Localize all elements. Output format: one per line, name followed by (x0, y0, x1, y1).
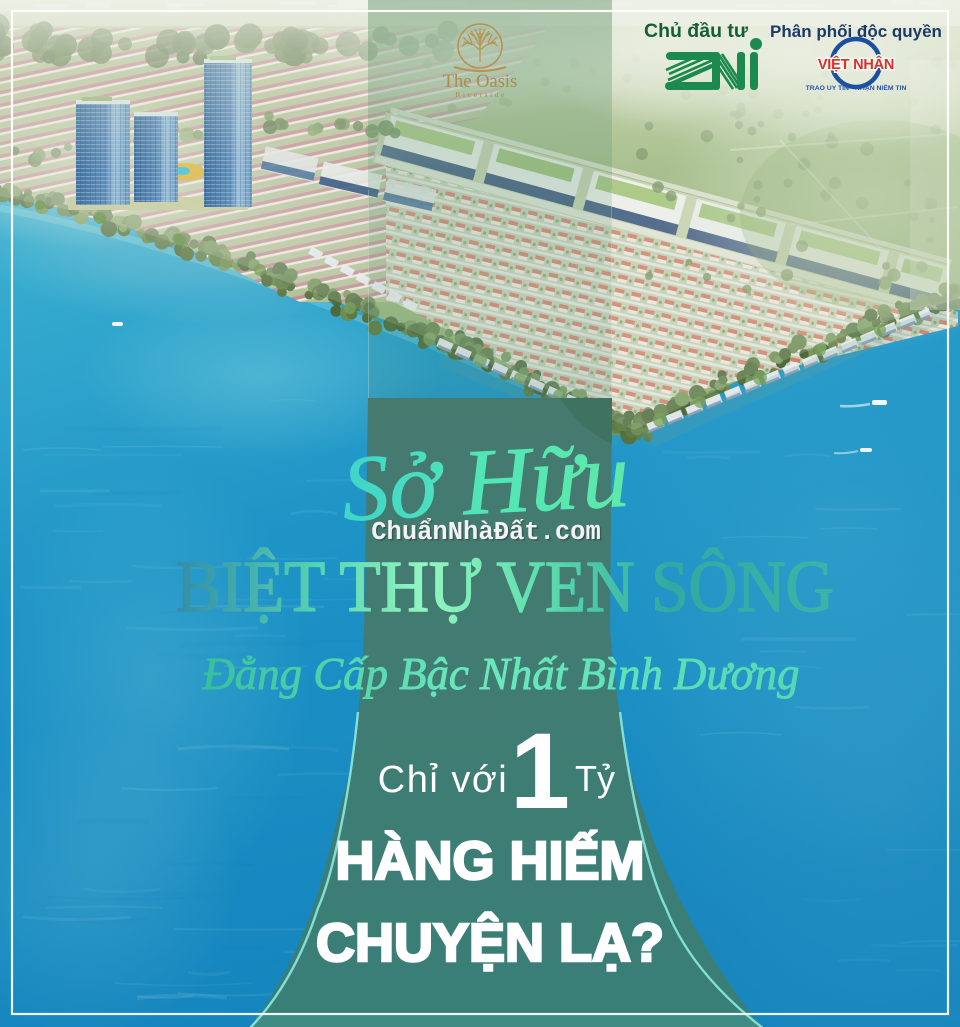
svg-text:Riverside: Riverside (455, 90, 506, 99)
svg-text:HÀNG HIẾM: HÀNG HIẾM (336, 831, 645, 891)
svg-text:ChuẩnNhàĐất.com: ChuẩnNhàĐất.com (371, 518, 601, 547)
svg-text:Tỷ: Tỷ (575, 758, 615, 799)
svg-text:Chỉ với: Chỉ với (378, 759, 508, 801)
svg-text:BIỆT THỰ VEN SÔNG: BIỆT THỰ VEN SÔNG (176, 546, 834, 627)
svg-text:1: 1 (510, 710, 570, 831)
svg-text:The Oasis: The Oasis (443, 72, 518, 92)
svg-text:Đẳng Cấp Bậc Nhất Bình Dương: Đẳng Cấp Bậc Nhất Bình Dương (202, 648, 800, 699)
svg-text:VIỆT NHÂN: VIỆT NHÂN (818, 55, 894, 73)
svg-text:CHUYỆN LẠ?: CHUYỆN LẠ? (316, 912, 664, 973)
svg-text:Chủ đầu tư: Chủ đầu tư (644, 20, 749, 42)
